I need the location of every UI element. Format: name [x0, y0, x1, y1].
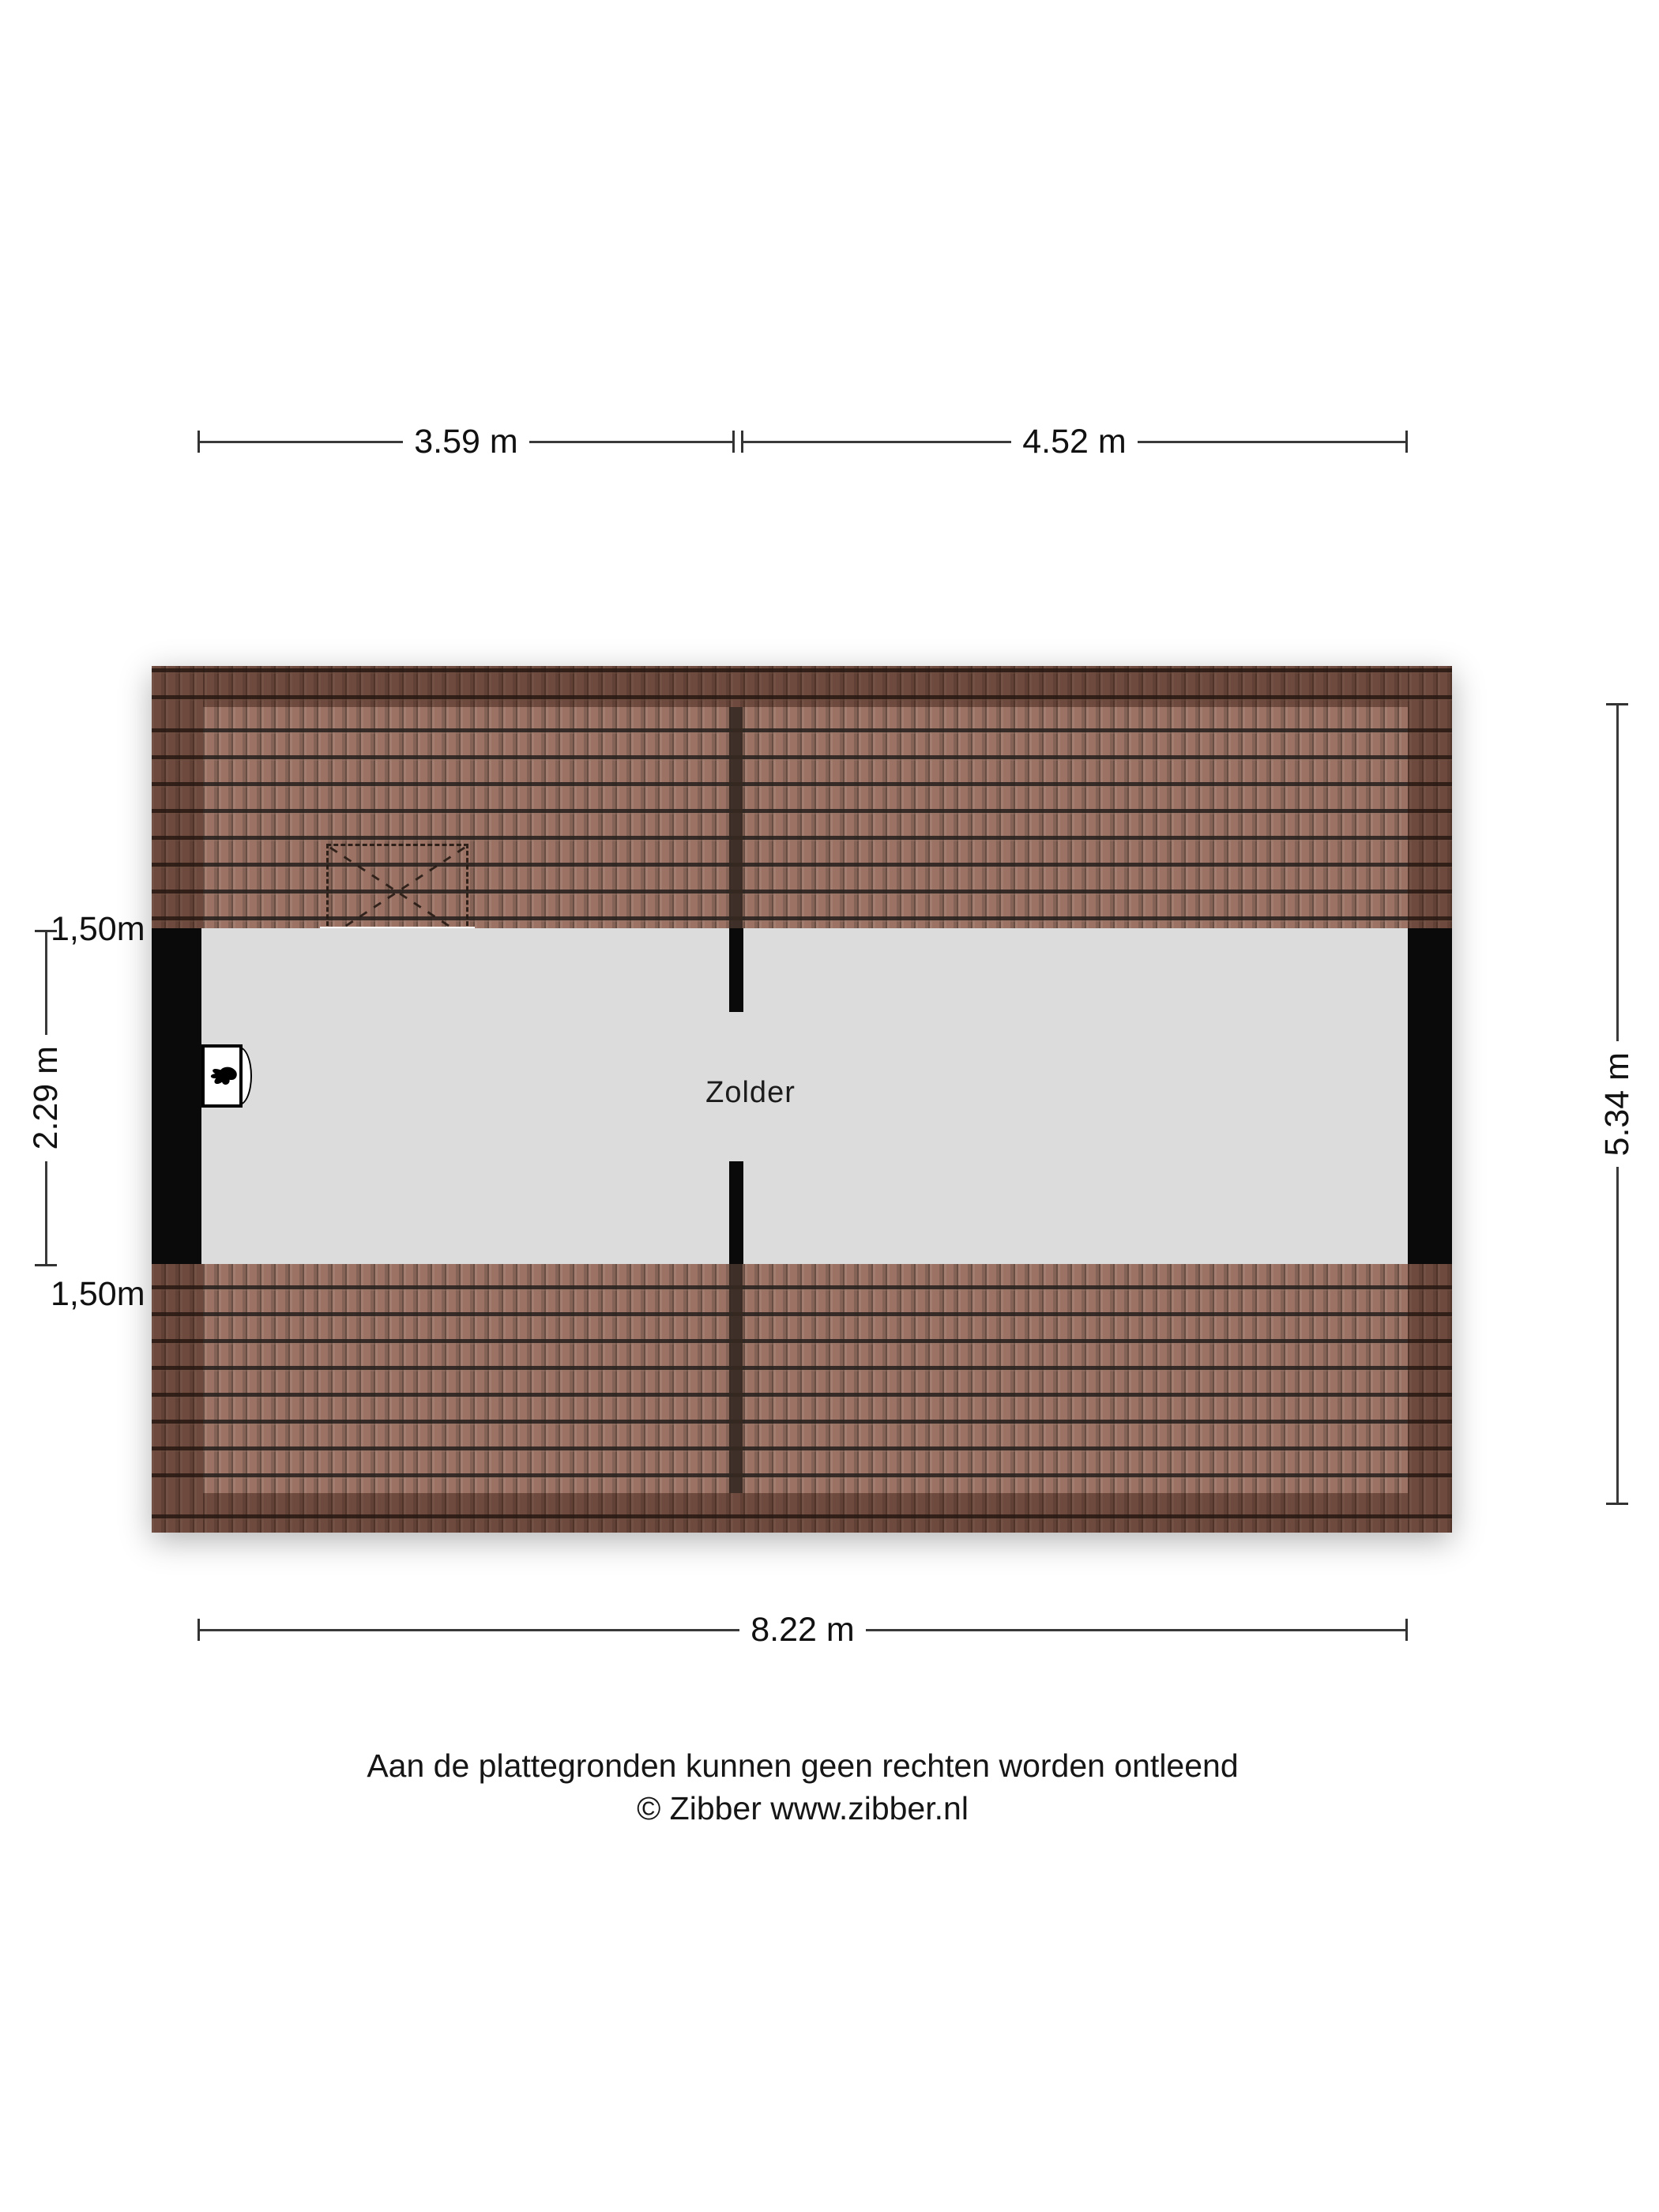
dim-line [200, 1629, 739, 1631]
partition-stub-upper [729, 928, 743, 1012]
room-label-zolder: Zolder [592, 1076, 908, 1110]
floorplan-page: Zolder 3.59 m 4.52 m 8.22 m 2.29 m 1,50m… [0, 0, 1659, 2212]
footer-disclaimer: Aan de plattegronden kunnen geen rechten… [0, 1744, 1605, 1830]
dim-line [866, 1629, 1405, 1631]
dim-line [1616, 705, 1619, 1041]
roof-ridge-seam-top [729, 707, 743, 928]
dim-line [200, 441, 403, 443]
dim-line [45, 932, 47, 1035]
dim-tick [1606, 1503, 1628, 1505]
dim-line [529, 441, 732, 443]
dim-label-left-lower: 1,50m [51, 1275, 145, 1314]
dim-tick [732, 431, 735, 453]
dim-tick [1405, 1619, 1408, 1641]
dimension-bottom: 8.22 m [197, 1612, 1408, 1647]
dim-label-left: 2.29 m [27, 1035, 66, 1161]
dim-label-top-left: 3.59 m [403, 423, 529, 461]
bottom-roof [152, 1264, 1452, 1533]
roof-ridge-seam-bottom [729, 1264, 743, 1493]
dim-label-left-upper: 1,50m [51, 910, 145, 949]
dimension-right: 5.34 m [1604, 703, 1631, 1505]
dim-line [45, 1161, 47, 1264]
right-wall [1408, 928, 1452, 1264]
dim-tick [35, 1264, 57, 1266]
dimension-top-left: 3.59 m [197, 424, 735, 459]
dim-label-bottom: 8.22 m [739, 1611, 865, 1650]
partition-stub-lower [729, 1161, 743, 1264]
dim-line [1616, 1167, 1619, 1503]
dim-line [1138, 441, 1405, 443]
copyright-line: © Zibber www.zibber.nl [0, 1787, 1605, 1830]
dimension-top-right: 4.52 m [741, 424, 1408, 459]
dimension-left: 2.29 m [32, 930, 59, 1266]
boiler-unit [201, 1044, 254, 1109]
disclaimer-line: Aan de plattegronden kunnen geen rechten… [0, 1744, 1605, 1787]
dim-tick [1405, 431, 1408, 453]
dim-label-right: 5.34 m [1598, 1041, 1637, 1167]
left-wall [152, 928, 201, 1264]
dashed-roof-window-icon [326, 844, 468, 940]
dim-line [743, 441, 1011, 443]
boiler-flame-icon [208, 1063, 238, 1089]
dim-label-top-right: 4.52 m [1011, 423, 1137, 461]
